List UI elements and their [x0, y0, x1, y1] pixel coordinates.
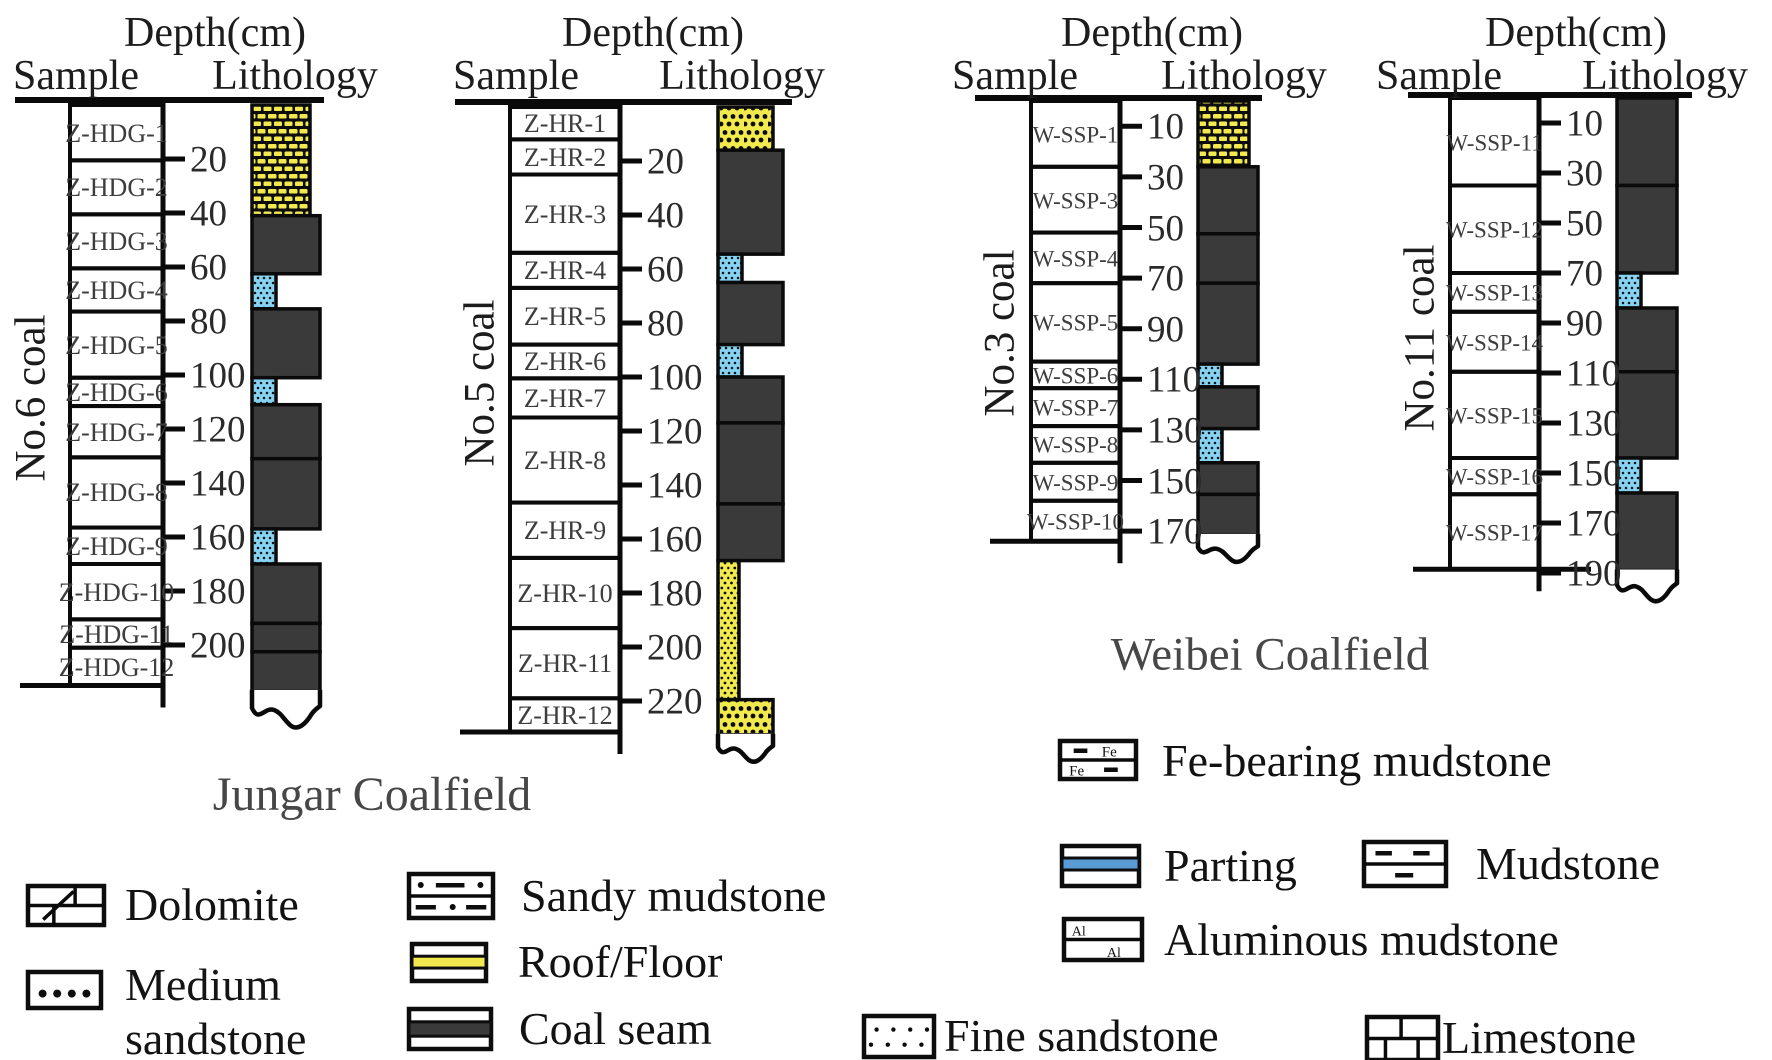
legend-label-roof_floor: Roof/Floor: [518, 939, 722, 985]
column-header-sample: Sample: [1376, 55, 1502, 97]
lith-block-parting: [1198, 364, 1222, 387]
depth-tick-label: 10: [1566, 106, 1603, 143]
depth-tick-label: 100: [647, 360, 703, 397]
lith-block-parting: [718, 345, 742, 377]
depth-tick-label: 120: [647, 414, 703, 451]
lith-block-parting: [718, 254, 742, 282]
depth-tick-label: 100: [190, 358, 246, 395]
sample-label: Z-HR-3: [524, 202, 606, 228]
legend-item-parting: [1062, 846, 1139, 886]
depth-tick-label: 160: [647, 522, 703, 559]
lith-block-medium_sandstone: [718, 107, 773, 150]
strat-column-no5: [455, 102, 792, 762]
sample-label: Z-HDG-2: [65, 175, 168, 201]
legend-item-mudstone: [1364, 842, 1446, 886]
sample-label: W-SSP-5: [1033, 312, 1119, 335]
sample-label: Z-HR-8: [524, 448, 606, 474]
depth-tick-label: 60: [647, 252, 684, 289]
legend-label-aluminous: Aluminous mudstone: [1164, 917, 1559, 963]
lith-block-coal: [252, 623, 320, 651]
depth-tick-label: 150: [1147, 463, 1203, 500]
lith-block-coal: [252, 459, 320, 529]
sample-label: Z-HDG-1: [65, 121, 168, 147]
lith-block-coal: [1617, 493, 1677, 571]
lith-block-coal: [1617, 186, 1677, 274]
legend-pattern-text: Fe: [1102, 745, 1117, 761]
lith-block-parting: [252, 274, 276, 309]
stratigraphic-columns-figure: FeFeAlAl Depth(cm)SampleLithologyNo.6 co…: [0, 0, 1772, 1060]
column-header-lithology: Lithology: [659, 55, 825, 97]
coal-seam-name: No.3 coal: [979, 249, 1022, 416]
column-foot: [252, 690, 320, 728]
depth-tick-label: 130: [1147, 412, 1203, 449]
column-foot: [1617, 570, 1677, 602]
sample-label: Z-HDG-5: [65, 333, 168, 359]
depth-tick-label: 80: [647, 306, 684, 343]
legend-swatch-fine_sandstone: [864, 1016, 934, 1057]
sample-label: Z-HR-6: [524, 349, 606, 375]
lith-block-medium_sandstone: [718, 700, 773, 735]
depth-tick-label: 20: [190, 142, 227, 179]
depth-tick-label: 40: [647, 198, 684, 235]
legend-item-aluminous: AlAl: [1064, 919, 1142, 961]
sample-label: Z-HR-9: [524, 518, 606, 544]
sample-label: Z-HDG-4: [65, 278, 168, 304]
legend-item-sandy_mudstone: [409, 874, 493, 918]
legend-pattern-text: Fe: [1069, 764, 1084, 780]
depth-tick-label: 130: [1566, 406, 1622, 443]
depth-tick-label: 60: [190, 250, 227, 287]
legend-label-mudstone: Mudstone: [1476, 841, 1660, 887]
lith-block-dolomite: [1198, 101, 1249, 167]
column-header-sample: Sample: [453, 55, 579, 97]
legend-pattern-text: Al: [1107, 946, 1121, 961]
sample-label: W-SSP-13: [1446, 282, 1543, 305]
legend-label-coal_seam: Coal seam: [519, 1006, 712, 1052]
lith-block-parting: [1617, 273, 1641, 308]
column-title-depth: Depth(cm): [124, 12, 306, 54]
column-title-depth: Depth(cm): [1061, 12, 1243, 54]
sample-label: W-SSP-17: [1446, 521, 1543, 544]
legend-item-fine_sandstone: [864, 1016, 934, 1057]
depth-tick-label: 50: [1566, 206, 1603, 243]
lith-block-coal: [718, 150, 783, 254]
lith-block-coal: [1198, 167, 1258, 234]
lith-block-coal: [1198, 283, 1258, 364]
sample-label: W-SSP-16: [1446, 466, 1543, 489]
depth-tick-label: 70: [1147, 261, 1184, 298]
depth-tick-label: 150: [1566, 456, 1622, 493]
lith-block-coal: [718, 423, 783, 504]
lith-block-coal: [1198, 234, 1258, 283]
sample-label: Z-HR-4: [524, 258, 606, 284]
depth-tick-label: 170: [1147, 514, 1203, 551]
lith-block-fine_sandstone: [718, 561, 739, 700]
legend-swatch-medium_sandstone: [28, 972, 101, 1008]
lith-block-coal: [718, 283, 783, 345]
lith-block-coal: [252, 216, 320, 274]
depth-tick-label: 10: [1147, 109, 1184, 146]
coal-seam-name: No.11 coal: [1399, 244, 1442, 431]
legend-item-fe_bearing: FeFe: [1060, 741, 1136, 780]
sample-label: W-SSP-12: [1446, 219, 1543, 242]
depth-tick-label: 50: [1147, 210, 1184, 247]
sample-label: Z-HDG-12: [59, 655, 175, 681]
legend-item-medium_sandstone: [28, 972, 101, 1008]
lith-block-coal: [1617, 372, 1677, 458]
column-header-sample: Sample: [13, 55, 139, 97]
legend-label-sandy_mudstone: Sandy mudstone: [521, 873, 826, 919]
sample-label: Z-HDG-11: [59, 622, 174, 648]
sample-label: Z-HDG-7: [65, 420, 168, 446]
column-header-lithology: Lithology: [212, 55, 378, 97]
legend-pattern-text: Al: [1072, 924, 1086, 939]
sample-label: Z-HDG-3: [65, 229, 168, 255]
legend-label-parting: Parting: [1164, 843, 1297, 889]
lith-block-coal: [718, 504, 783, 561]
sample-label: W-SSP-9: [1033, 471, 1119, 494]
sample-label: Z-HDG-10: [59, 580, 175, 606]
lith-block-coal: [252, 309, 320, 378]
sample-label: Z-HR-12: [517, 703, 612, 729]
sample-label: Z-HDG-9: [65, 534, 168, 560]
column-header-lithology: Lithology: [1161, 55, 1327, 97]
caption-jungar-coalfield: Jungar Coalfield: [213, 771, 532, 819]
depth-tick-label: 40: [190, 196, 227, 233]
legend-label-dolomite: Dolomite: [125, 882, 299, 928]
legend-item-dolomite: [28, 886, 104, 925]
depth-tick-label: 30: [1147, 159, 1184, 196]
lith-block-coal: [718, 377, 783, 423]
sample-label: Z-HR-10: [517, 581, 612, 607]
depth-tick-label: 180: [190, 574, 246, 611]
column-foot: [718, 734, 773, 762]
column-header-lithology: Lithology: [1582, 55, 1748, 97]
depth-tick-label: 120: [190, 412, 246, 449]
lith-block-coal: [1198, 494, 1258, 534]
legend-item-coal_seam: [409, 1009, 491, 1049]
sample-label: W-SSP-11: [1446, 131, 1542, 154]
coal-seam-name: No.6 coal: [10, 314, 53, 481]
depth-tick-label: 90: [1147, 311, 1184, 348]
sample-label: W-SSP-3: [1033, 189, 1119, 212]
legend-item-roof_floor: [412, 944, 486, 981]
legend-label-fine_sandstone: Fine sandstone: [944, 1013, 1219, 1059]
depth-tick-label: 200: [647, 630, 703, 667]
lith-block-dolomite: [252, 105, 310, 216]
depth-tick-label: 170: [1566, 506, 1622, 543]
lith-block-coal: [1198, 387, 1258, 429]
sample-label: W-SSP-8: [1033, 434, 1119, 457]
sample-label: Z-HR-7: [524, 386, 606, 412]
sample-label: Z-HDG-6: [65, 380, 168, 406]
sample-label: Z-HR-1: [524, 111, 606, 137]
depth-tick-label: 220: [647, 684, 703, 721]
depth-tick-label: 160: [190, 520, 246, 557]
lith-block-coal: [252, 652, 320, 691]
depth-tick-label: 30: [1566, 156, 1603, 193]
depth-tick-label: 110: [1147, 362, 1201, 399]
depth-tick-label: 140: [190, 466, 246, 503]
sample-label: Z-HDG-8: [65, 480, 168, 506]
sample-label: Z-HR-5: [524, 304, 606, 330]
lith-block-coal: [252, 564, 320, 623]
sample-label: W-SSP-4: [1033, 247, 1119, 270]
lith-block-parting: [252, 529, 276, 564]
legend-label-medium_sandstone: Medium sandstone: [125, 958, 375, 1060]
sample-label: W-SSP-7: [1033, 397, 1119, 420]
sample-label: W-SSP-10: [1027, 510, 1124, 533]
depth-tick-label: 140: [647, 468, 703, 505]
legend-label-fe_bearing: Fe-bearing mudstone: [1162, 738, 1552, 784]
sample-label: W-SSP-14: [1446, 331, 1543, 354]
depth-tick-label: 70: [1566, 256, 1603, 293]
column-foot: [1198, 534, 1258, 562]
sample-label: Z-HR-11: [518, 651, 612, 677]
legend-label-limestone: Limestone: [1442, 1015, 1636, 1060]
depth-tick-label: 110: [1566, 356, 1620, 393]
lith-block-coal: [1617, 98, 1677, 186]
lith-block-coal: [1198, 463, 1258, 495]
column-title-depth: Depth(cm): [1485, 12, 1667, 54]
sample-label: W-SSP-15: [1446, 404, 1543, 427]
lith-block-coal: [1617, 308, 1677, 372]
lith-block-parting: [252, 378, 276, 405]
depth-tick-label: 200: [190, 628, 246, 665]
column-title-depth: Depth(cm): [562, 12, 744, 54]
caption-weibei-coalfield: Weibei Coalfield: [1111, 632, 1430, 679]
sample-label: W-SSP-1: [1033, 123, 1119, 146]
sample-label: Z-HR-2: [524, 145, 606, 171]
depth-tick-label: 90: [1566, 306, 1603, 343]
depth-tick-label: 190: [1566, 556, 1622, 593]
lith-block-coal: [252, 405, 320, 459]
depth-tick-label: 180: [647, 576, 703, 613]
depth-tick-label: 80: [190, 304, 227, 341]
legend-item-limestone: [1367, 1017, 1438, 1060]
column-header-sample: Sample: [952, 55, 1078, 97]
sample-label: W-SSP-6: [1033, 364, 1119, 387]
coal-seam-name: No.5 coal: [459, 299, 502, 466]
depth-tick-label: 20: [647, 144, 684, 181]
